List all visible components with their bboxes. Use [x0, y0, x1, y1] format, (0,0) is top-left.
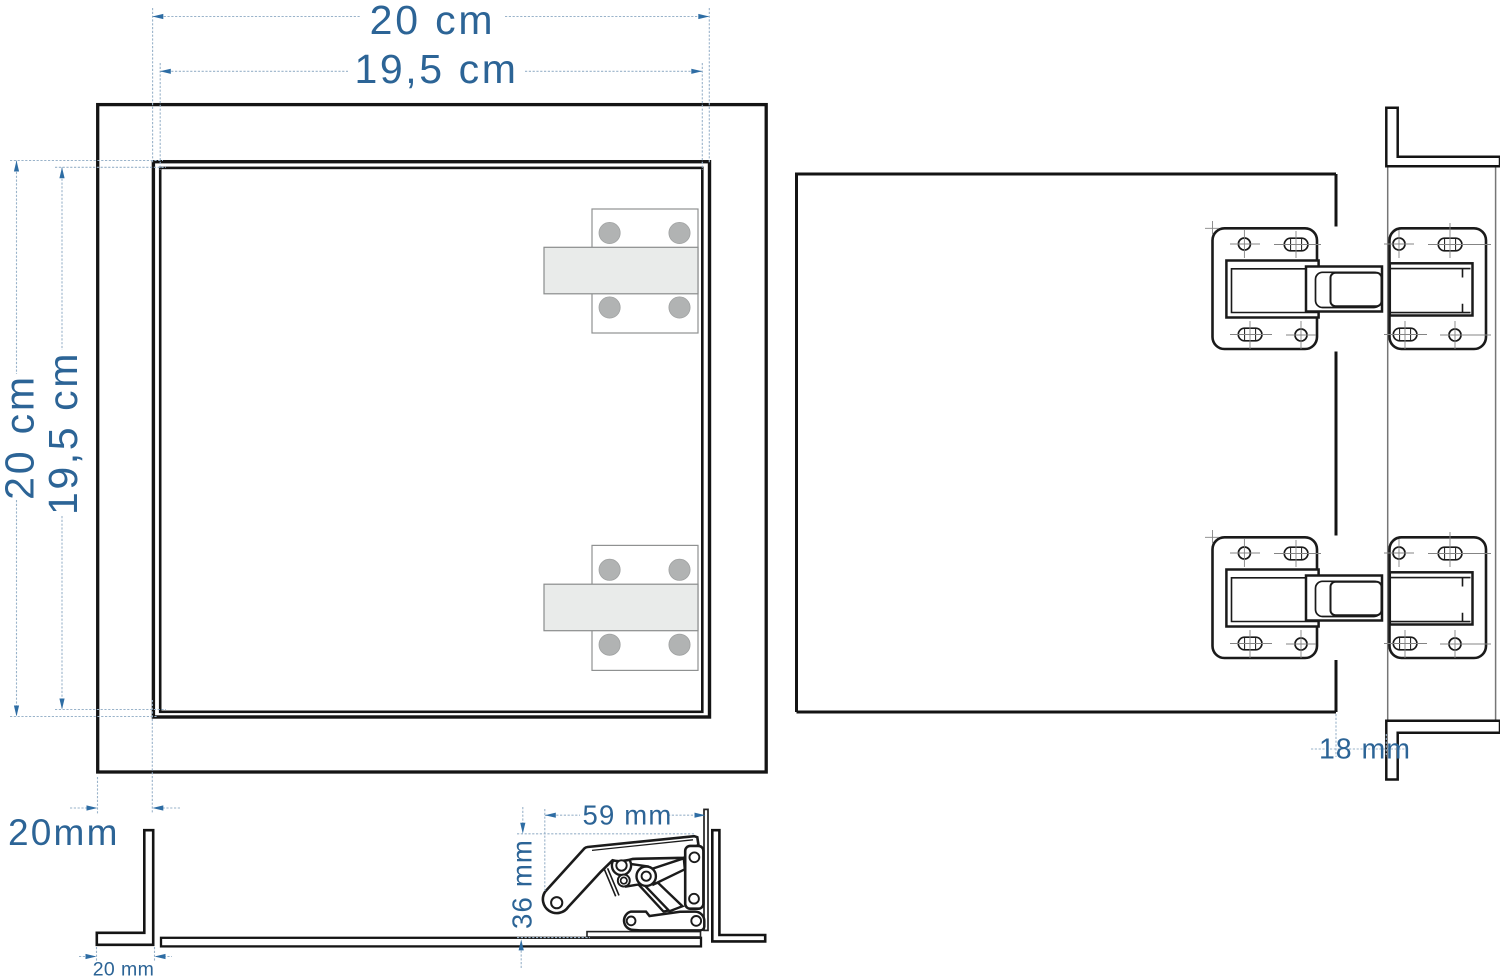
- svg-text:20 cm: 20 cm: [0, 374, 43, 500]
- svg-text:20 cm: 20 cm: [370, 0, 496, 43]
- svg-text:19,5 cm: 19,5 cm: [40, 351, 86, 515]
- svg-text:19,5 cm: 19,5 cm: [354, 46, 518, 92]
- svg-text:36 mm: 36 mm: [507, 839, 538, 929]
- svg-text:20 mm: 20 mm: [93, 959, 155, 976]
- svg-text:18 mm: 18 mm: [1319, 734, 1411, 766]
- svg-text:59 mm: 59 mm: [582, 800, 672, 831]
- svg-text:20mm: 20mm: [8, 812, 120, 853]
